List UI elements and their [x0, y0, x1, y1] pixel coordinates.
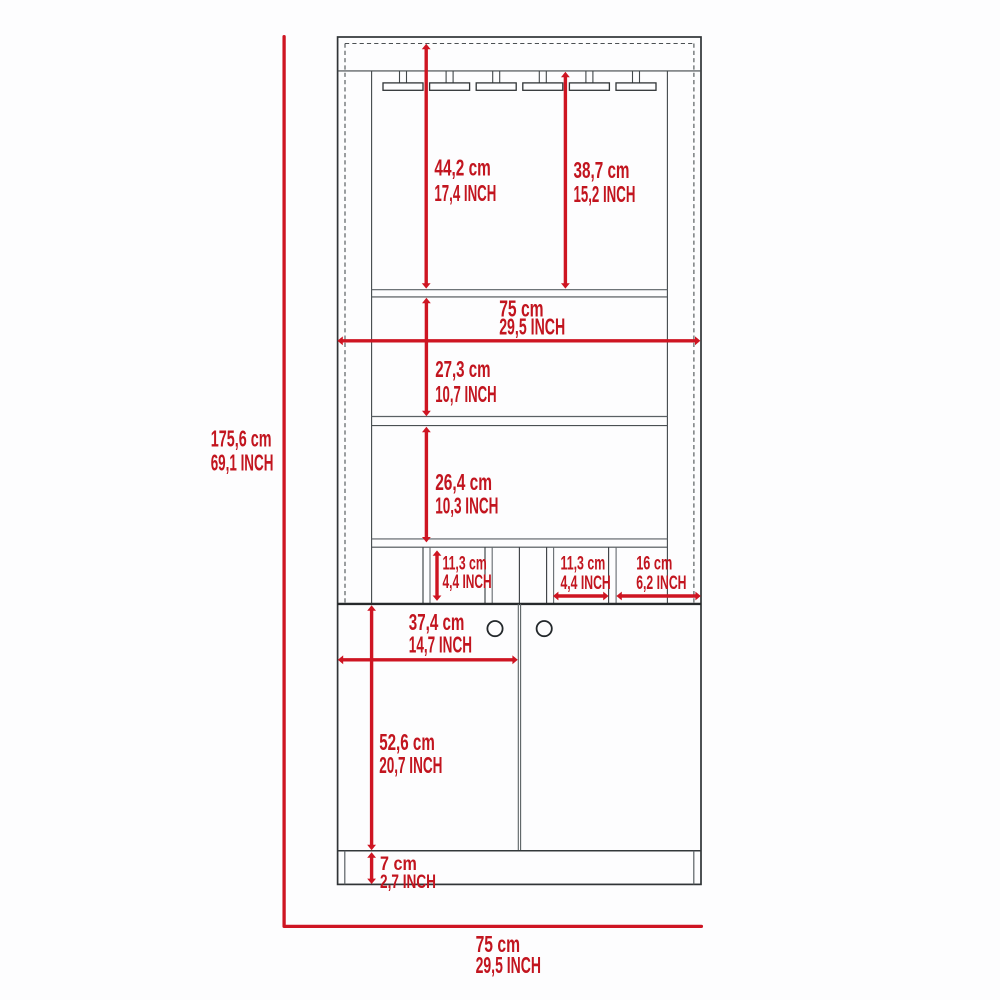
svg-text:38,7 cm: 38,7 cm	[574, 157, 630, 183]
svg-text:4,4 INCH: 4,4 INCH	[561, 572, 611, 594]
svg-text:16 cm: 16 cm	[636, 552, 672, 574]
svg-text:10,3 INCH: 10,3 INCH	[435, 493, 498, 519]
svg-text:4,4 INCH: 4,4 INCH	[443, 571, 492, 593]
svg-text:26,4 cm: 26,4 cm	[435, 469, 492, 495]
svg-text:2,7 INCH: 2,7 INCH	[380, 871, 436, 893]
svg-text:17,4 INCH: 17,4 INCH	[434, 180, 496, 206]
svg-text:10,7 INCH: 10,7 INCH	[435, 381, 496, 407]
svg-text:14,7 INCH: 14,7 INCH	[409, 632, 472, 658]
svg-text:69,1 INCH: 69,1 INCH	[211, 449, 274, 475]
svg-text:29,5 INCH: 29,5 INCH	[499, 314, 565, 340]
svg-text:52,6 cm: 52,6 cm	[379, 729, 435, 755]
svg-text:44,2 cm: 44,2 cm	[434, 155, 490, 181]
svg-text:15,2 INCH: 15,2 INCH	[574, 181, 636, 207]
svg-text:175,6 cm: 175,6 cm	[211, 426, 272, 452]
svg-text:6,2 INCH: 6,2 INCH	[636, 572, 686, 594]
svg-text:29,5 INCH: 29,5 INCH	[476, 952, 541, 978]
svg-text:20,7 INCH: 20,7 INCH	[379, 752, 442, 778]
svg-text:27,3 cm: 27,3 cm	[435, 356, 490, 382]
